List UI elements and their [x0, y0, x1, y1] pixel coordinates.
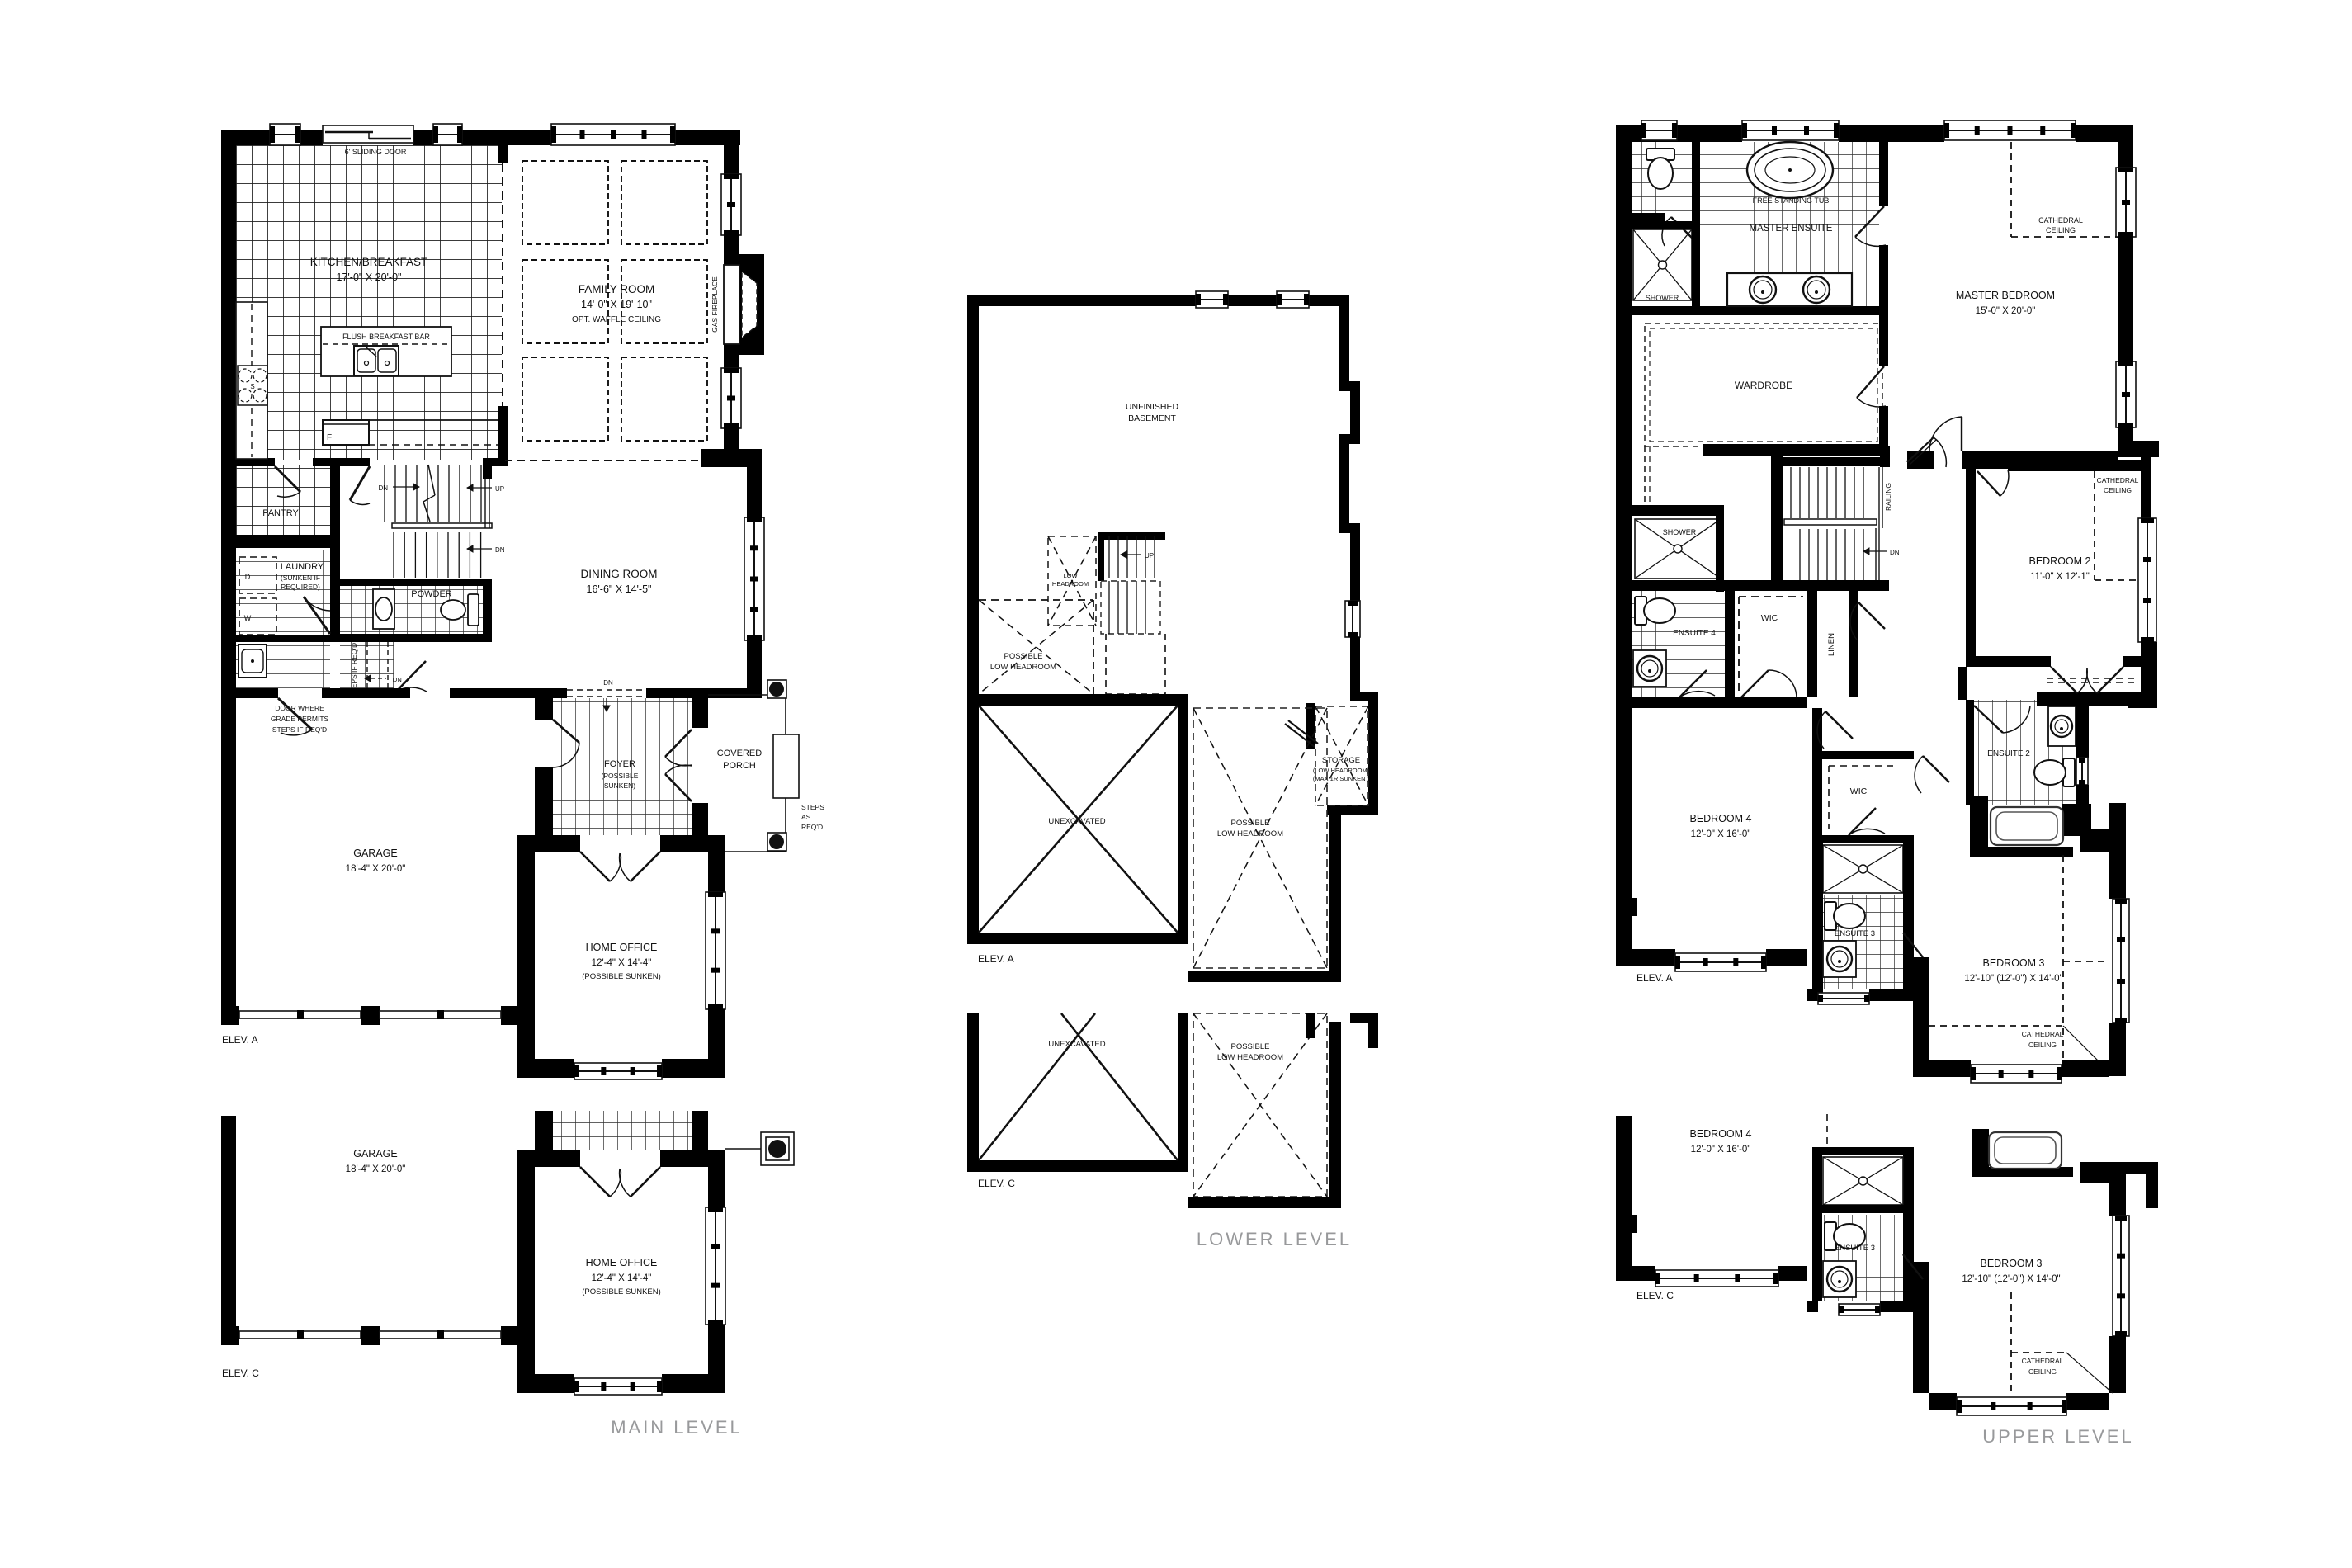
svg-text:LOW HEADROOM: LOW HEADROOM	[1217, 1053, 1283, 1062]
svg-text:DINING ROOM: DINING ROOM	[581, 568, 658, 580]
svg-text:MASTER ENSUITE: MASTER ENSUITE	[1750, 224, 1833, 234]
svg-text:REQ'D: REQ'D	[801, 823, 823, 831]
svg-text:GAS FIREPLACE: GAS FIREPLACE	[711, 276, 719, 333]
svg-text:GARAGE: GARAGE	[353, 1148, 398, 1159]
svg-text:CEILING: CEILING	[2028, 1367, 2057, 1376]
svg-text:BEDROOM 4: BEDROOM 4	[1689, 813, 1751, 824]
svg-text:DN: DN	[378, 484, 388, 492]
svg-text:6' SLIDING DOOR: 6' SLIDING DOOR	[345, 148, 407, 156]
svg-text:12'-4" X 14'-4": 12'-4" X 14'-4"	[592, 958, 652, 968]
svg-text:UNEXCAVATED: UNEXCAVATED	[1048, 1040, 1105, 1049]
svg-text:(POSSIBLE SUNKEN): (POSSIBLE SUNKEN)	[582, 972, 661, 981]
svg-text:CEILING: CEILING	[2028, 1041, 2057, 1049]
svg-text:CATHEDRAL: CATHEDRAL	[2022, 1357, 2064, 1365]
svg-text:ENSUITE 2: ENSUITE 2	[1987, 749, 2030, 758]
svg-text:PORCH: PORCH	[723, 761, 756, 771]
svg-text:12'-10" (12'-0") X 14'-0": 12'-10" (12'-0") X 14'-0"	[1962, 1274, 2060, 1284]
svg-text:18'-4" X 20'-0": 18'-4" X 20'-0"	[346, 864, 406, 874]
svg-text:KITCHEN/BREAKFAST: KITCHEN/BREAKFAST	[310, 256, 428, 268]
svg-text:POSSIBLE: POSSIBLE	[1231, 1042, 1270, 1051]
svg-text:ELEV. C: ELEV. C	[978, 1178, 1015, 1189]
svg-text:MAIN LEVEL: MAIN LEVEL	[611, 1417, 743, 1438]
svg-text:(LOW HEADROOM): (LOW HEADROOM)	[1313, 767, 1370, 774]
svg-text:LOW HEADROOM: LOW HEADROOM	[1217, 829, 1283, 838]
svg-text:(POSSIBLE SUNKEN): (POSSIBLE SUNKEN)	[582, 1287, 661, 1296]
svg-text:DN: DN	[495, 546, 505, 554]
svg-text:SUNKEN): SUNKEN)	[604, 782, 635, 790]
svg-text:STORAGE: STORAGE	[1322, 756, 1360, 765]
svg-text:ELEV. C: ELEV. C	[1636, 1290, 1674, 1301]
svg-text:ELEV. A: ELEV. A	[222, 1034, 258, 1046]
svg-text:W: W	[244, 614, 252, 622]
svg-text:ELEV. A: ELEV. A	[1636, 972, 1673, 984]
svg-text:DN: DN	[603, 679, 613, 687]
svg-text:DOOR WHERE: DOOR WHERE	[275, 704, 324, 712]
svg-text:PANTRY: PANTRY	[262, 508, 299, 518]
svg-text:HEADROOM: HEADROOM	[1052, 580, 1089, 588]
svg-text:17'-0" X 20'-0": 17'-0" X 20'-0"	[337, 272, 402, 283]
svg-text:CATHEDRAL: CATHEDRAL	[2097, 476, 2139, 484]
svg-text:12'-0" X 16'-0": 12'-0" X 16'-0"	[1691, 829, 1751, 839]
svg-text:F: F	[327, 433, 332, 442]
svg-text:WARDROBE: WARDROBE	[1735, 380, 1792, 391]
svg-text:(POSSIBLE: (POSSIBLE	[602, 772, 639, 780]
svg-text:STEPS IF REQ'D: STEPS IF REQ'D	[272, 725, 327, 734]
svg-text:FOYER: FOYER	[604, 759, 635, 769]
svg-text:D: D	[245, 573, 251, 581]
svg-text:ENSUITE 3: ENSUITE 3	[1835, 1244, 1875, 1253]
svg-text:ELEV. C: ELEV. C	[222, 1367, 259, 1379]
svg-text:STEPS: STEPS	[801, 803, 824, 811]
svg-text:BASEMENT: BASEMENT	[1128, 413, 1176, 423]
svg-text:LOW: LOW	[1063, 572, 1078, 579]
svg-text:16'-6" X 14'-5": 16'-6" X 14'-5"	[587, 583, 652, 595]
svg-text:AS: AS	[801, 813, 811, 821]
svg-text:BEDROOM 2: BEDROOM 2	[2028, 555, 2090, 567]
svg-text:SHOWER: SHOWER	[1646, 294, 1679, 302]
svg-text:LOWER LEVEL: LOWER LEVEL	[1197, 1229, 1352, 1249]
svg-text:S: S	[250, 383, 254, 390]
svg-text:12'-10" (12'-0") X 14'-0": 12'-10" (12'-0") X 14'-0"	[1964, 974, 2062, 984]
svg-text:BEDROOM 3: BEDROOM 3	[1980, 1258, 2042, 1269]
svg-text:POWDER: POWDER	[411, 589, 452, 599]
svg-text:CATHEDRAL: CATHEDRAL	[2038, 216, 2083, 224]
svg-text:RAILING: RAILING	[1884, 483, 1892, 511]
svg-text:GARAGE: GARAGE	[353, 848, 398, 859]
svg-text:MASTER BEDROOM: MASTER BEDROOM	[1956, 290, 2055, 301]
svg-text:12'-0" X 16'-0": 12'-0" X 16'-0"	[1691, 1145, 1751, 1155]
svg-text:WIC: WIC	[1850, 786, 1868, 796]
svg-text:15'-0" X 20'-0": 15'-0" X 20'-0"	[1976, 306, 2036, 316]
svg-text:POSSIBLE: POSSIBLE	[1231, 819, 1270, 828]
svg-text:14'-0" X 19'-10": 14'-0" X 19'-10"	[581, 299, 652, 310]
svg-text:11'-0" X 12'-1": 11'-0" X 12'-1"	[2030, 572, 2090, 582]
svg-text:UP: UP	[1145, 552, 1154, 560]
svg-text:REQUIRED): REQUIRED)	[281, 583, 320, 591]
svg-text:COVERED: COVERED	[717, 749, 762, 758]
svg-text:OPT. WAFFLE CEILING: OPT. WAFFLE CEILING	[572, 315, 661, 324]
svg-text:HOME OFFICE: HOME OFFICE	[586, 942, 658, 953]
svg-text:LINEN: LINEN	[1827, 633, 1836, 656]
svg-text:CATHEDRAL: CATHEDRAL	[2022, 1030, 2064, 1038]
svg-text:DN: DN	[393, 676, 402, 683]
svg-text:LOW HEADROOM: LOW HEADROOM	[990, 663, 1056, 672]
svg-text:SHOWER: SHOWER	[1663, 528, 1697, 536]
svg-text:CEILING: CEILING	[2104, 486, 2132, 494]
svg-text:(MAX 1R SUNKEN ): (MAX 1R SUNKEN )	[1313, 775, 1370, 782]
svg-text:UP: UP	[495, 485, 504, 493]
svg-text:WIC: WIC	[1761, 613, 1778, 623]
svg-text:BEDROOM 4: BEDROOM 4	[1689, 1128, 1751, 1140]
svg-text:HOME OFFICE: HOME OFFICE	[586, 1257, 658, 1268]
svg-text:ELEV. A: ELEV. A	[978, 953, 1014, 965]
svg-text:UNFINISHED: UNFINISHED	[1126, 402, 1179, 412]
svg-text:POSSIBLE: POSSIBLE	[1004, 652, 1043, 661]
svg-text:DN: DN	[1890, 549, 1900, 556]
svg-text:CEILING: CEILING	[2046, 226, 2076, 234]
svg-text:18'-4" X 20'-0": 18'-4" X 20'-0"	[346, 1164, 406, 1174]
svg-text:LAUNDRY: LAUNDRY	[281, 562, 324, 572]
svg-text:ENSUITE 4: ENSUITE 4	[1673, 629, 1716, 638]
svg-text:ENSUITE 3: ENSUITE 3	[1835, 929, 1875, 938]
svg-text:UNEXCAVATED: UNEXCAVATED	[1048, 817, 1105, 826]
svg-text:UPPER LEVEL: UPPER LEVEL	[1982, 1426, 2133, 1447]
svg-text:GRADE PERMITS: GRADE PERMITS	[271, 715, 329, 723]
svg-text:FAMILY ROOM: FAMILY ROOM	[579, 283, 655, 295]
svg-text:FLUSH BREAKFAST BAR: FLUSH BREAKFAST BAR	[342, 333, 430, 341]
svg-text:12'-4" X 14'-4": 12'-4" X 14'-4"	[592, 1273, 652, 1283]
svg-text:FREE STANDING TUB: FREE STANDING TUB	[1753, 196, 1830, 205]
svg-text:BEDROOM 3: BEDROOM 3	[1982, 957, 2044, 969]
svg-text:(SUNKEN IF: (SUNKEN IF	[281, 574, 320, 582]
